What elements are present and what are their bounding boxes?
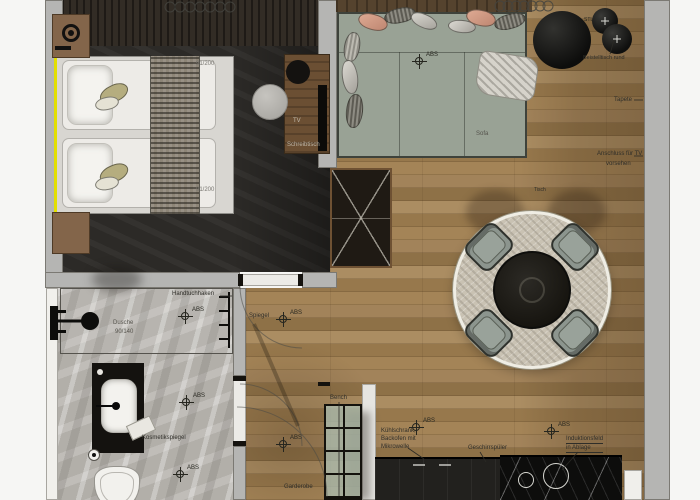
mattress-dimension-top: 91/200 <box>196 60 214 68</box>
door-jamb <box>233 441 246 446</box>
toilet <box>94 466 140 500</box>
bench-label: Bench <box>330 394 347 402</box>
induction-line-2: in Ablage <box>566 444 603 453</box>
wall-right <box>644 0 670 500</box>
abs-symbol: ABS <box>181 312 189 320</box>
faucet-arm-icon <box>96 405 114 407</box>
sideboard <box>336 0 532 12</box>
sofa-seat-line <box>464 52 465 156</box>
wall-doorway-stub <box>302 272 337 288</box>
vanity-counter <box>92 363 144 453</box>
shower-label: Dusche <box>113 319 133 327</box>
crosshair-icon <box>415 57 423 65</box>
dining-table <box>493 251 571 329</box>
cooktop-icon <box>543 463 569 489</box>
tv-label: TV <box>293 117 301 125</box>
wardrobe <box>330 168 392 268</box>
tv-connection-label-1: Anschluss für TV <box>597 150 642 158</box>
kitchen-counter-left <box>375 457 501 500</box>
sink-icon <box>518 472 534 488</box>
lamp-dot-icon <box>68 30 74 36</box>
wall-bathroom-right-upper <box>233 288 246 376</box>
abs-symbol: ABS <box>279 315 287 323</box>
shower-head-icon <box>81 312 99 330</box>
bench-center-line <box>343 406 345 498</box>
induction-label: Induktionsfeld in Ablage <box>566 435 603 453</box>
side-table-label: Beistelltisch rund <box>583 54 625 62</box>
crosshair-icon <box>182 398 190 406</box>
desk-label: Schreibtisch <box>287 141 320 149</box>
wall-bathroom-right-lower <box>233 446 246 500</box>
appliance-line-3: Mikrowelle <box>381 443 416 451</box>
desk-chair <box>286 60 310 84</box>
crosshair-icon <box>279 440 287 448</box>
nightstand-top <box>52 14 90 58</box>
toilet-bowl-line <box>100 472 134 500</box>
crosshair-icon <box>412 423 420 431</box>
wall-bathroom-top <box>45 272 240 288</box>
cosmetic-mirror-label: Kosmetikspiegel <box>142 434 186 442</box>
abs-symbol: ABS <box>182 398 190 406</box>
kitchen-pillar <box>362 384 376 500</box>
appliance-line-1: Kühlschrank, <box>381 427 416 435</box>
wardrobe-shelf-line <box>332 218 390 219</box>
appliance-line-2: Backofen mit <box>381 435 416 443</box>
window-accent-strip <box>54 58 57 212</box>
counter-handle-icon <box>413 464 425 466</box>
abs-symbol: ABS <box>547 427 555 435</box>
counter-handle-icon <box>439 464 451 466</box>
table-label: Tisch <box>534 186 546 194</box>
door-leaf <box>624 470 642 500</box>
doorway-bathroom <box>233 376 246 446</box>
side-table-round <box>602 24 632 54</box>
abs-symbol: ABS <box>412 423 420 431</box>
wallpaper-label: Tapete <box>614 96 632 104</box>
door-jamb <box>238 274 243 286</box>
stl-label: STL <box>584 16 593 24</box>
door-jamb <box>298 274 303 286</box>
mirror-label: Spiegel <box>249 312 269 320</box>
kitchen-counter-marble <box>500 455 622 500</box>
crosshair-icon <box>279 315 287 323</box>
toilet-paper-dot-icon <box>92 453 96 457</box>
shower-valve-knob-icon <box>58 310 66 313</box>
appliance-label: Kühlschrank, Backofen mit Mikrowelle <box>381 427 416 451</box>
crosshair-icon <box>181 312 189 320</box>
nightstand-bottom <box>52 212 90 254</box>
bed-runner <box>150 56 200 214</box>
shower-valve-icon <box>50 306 58 340</box>
mattress-dimension-bottom: 91/200 <box>196 186 214 194</box>
stool <box>252 84 288 120</box>
doorway-bedroom-hall <box>240 274 302 286</box>
soap-dish-icon <box>97 369 103 375</box>
induction-line-1: Induktionsfeld <box>566 435 603 444</box>
tv-connection-label-2: vorsehen <box>606 160 631 168</box>
dishwasher-label: Geschirrspüler <box>468 444 507 452</box>
shower-dimension: 90/140 <box>115 328 133 336</box>
crosshair-icon <box>176 470 184 478</box>
abs-symbol: ABS <box>415 57 423 65</box>
towel-hook-label: Handtuchhaken <box>172 290 214 298</box>
shower-valve-knob-icon <box>58 330 66 333</box>
sofa-seat-line <box>399 52 400 156</box>
abs-symbol: ABS <box>176 470 184 478</box>
abs-symbol: ABS <box>279 440 287 448</box>
switch-icon <box>55 46 71 50</box>
headboard-wall-panel <box>62 0 318 46</box>
glass-bench <box>324 404 362 500</box>
sofa-label: Sofa <box>476 130 488 138</box>
wardrobe-area-label: Garderobe <box>284 483 313 491</box>
door-jamb <box>318 382 330 386</box>
floor-plan: 91/200 91/200 TV Schreibtisch <box>0 0 700 500</box>
door-jamb <box>233 376 246 381</box>
crosshair-icon <box>547 427 555 435</box>
table-emblem-icon <box>519 277 545 303</box>
